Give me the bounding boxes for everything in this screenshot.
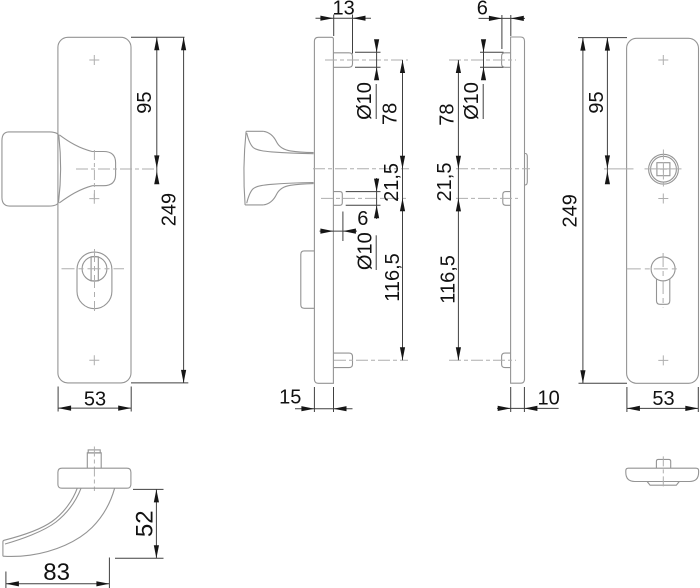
- svg-text:Ø10: Ø10: [354, 82, 376, 120]
- svg-text:53: 53: [652, 388, 674, 410]
- svg-text:53: 53: [84, 389, 106, 411]
- svg-text:78: 78: [436, 103, 458, 125]
- svg-text:6: 6: [357, 208, 368, 230]
- svg-text:52: 52: [132, 510, 159, 537]
- svg-text:21,5: 21,5: [434, 163, 456, 202]
- svg-text:10: 10: [537, 388, 559, 410]
- svg-text:21,5: 21,5: [381, 163, 403, 202]
- svg-text:78: 78: [380, 103, 402, 125]
- svg-text:15: 15: [279, 387, 301, 409]
- svg-text:249: 249: [159, 193, 181, 226]
- svg-text:13: 13: [332, 0, 354, 20]
- svg-text:95: 95: [134, 91, 156, 113]
- svg-text:Ø10: Ø10: [461, 82, 483, 120]
- svg-text:95: 95: [586, 91, 608, 113]
- svg-text:116,5: 116,5: [382, 253, 404, 302]
- svg-text:249: 249: [559, 194, 581, 227]
- svg-text:116,5: 116,5: [437, 255, 459, 304]
- svg-text:6: 6: [477, 0, 488, 19]
- svg-text:83: 83: [43, 559, 70, 586]
- svg-text:Ø10: Ø10: [355, 232, 377, 270]
